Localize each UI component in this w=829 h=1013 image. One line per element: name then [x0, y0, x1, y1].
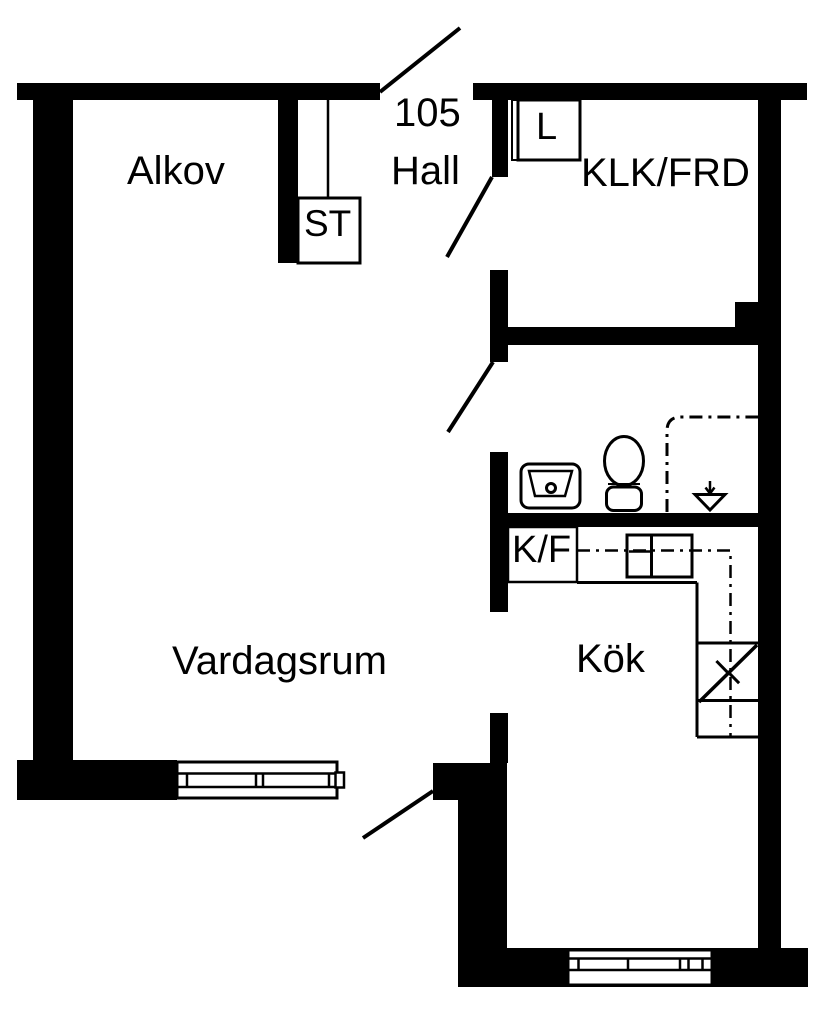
closet-label-kf: K/F: [512, 531, 571, 569]
door-swing-balcony: [363, 791, 433, 838]
closet-label-l: L: [536, 108, 557, 146]
room-label-hall: Hall: [391, 151, 460, 191]
stove-icon: [627, 535, 692, 577]
room-label-kok: Kök: [576, 639, 645, 679]
window-kitchen: [568, 950, 712, 985]
room-label-vardagsrum: Vardagsrum: [172, 641, 387, 681]
window-living-room: [177, 762, 344, 798]
door-swing-bathroom: [448, 362, 493, 432]
door-swing-entry: [380, 28, 460, 92]
floor-plan: 105 Alkov Hall KLK/FRD Vardagsrum Kök ST…: [0, 0, 829, 1013]
shower-drain-icon: [695, 481, 725, 510]
room-label-klk-frd: KLK/FRD: [581, 153, 750, 193]
toilet-icon: [605, 437, 644, 511]
closet-label-st: ST: [304, 205, 351, 242]
apartment-number: 105: [394, 93, 461, 133]
sink-icon: [521, 464, 580, 508]
room-label-alkov: Alkov: [127, 151, 225, 191]
